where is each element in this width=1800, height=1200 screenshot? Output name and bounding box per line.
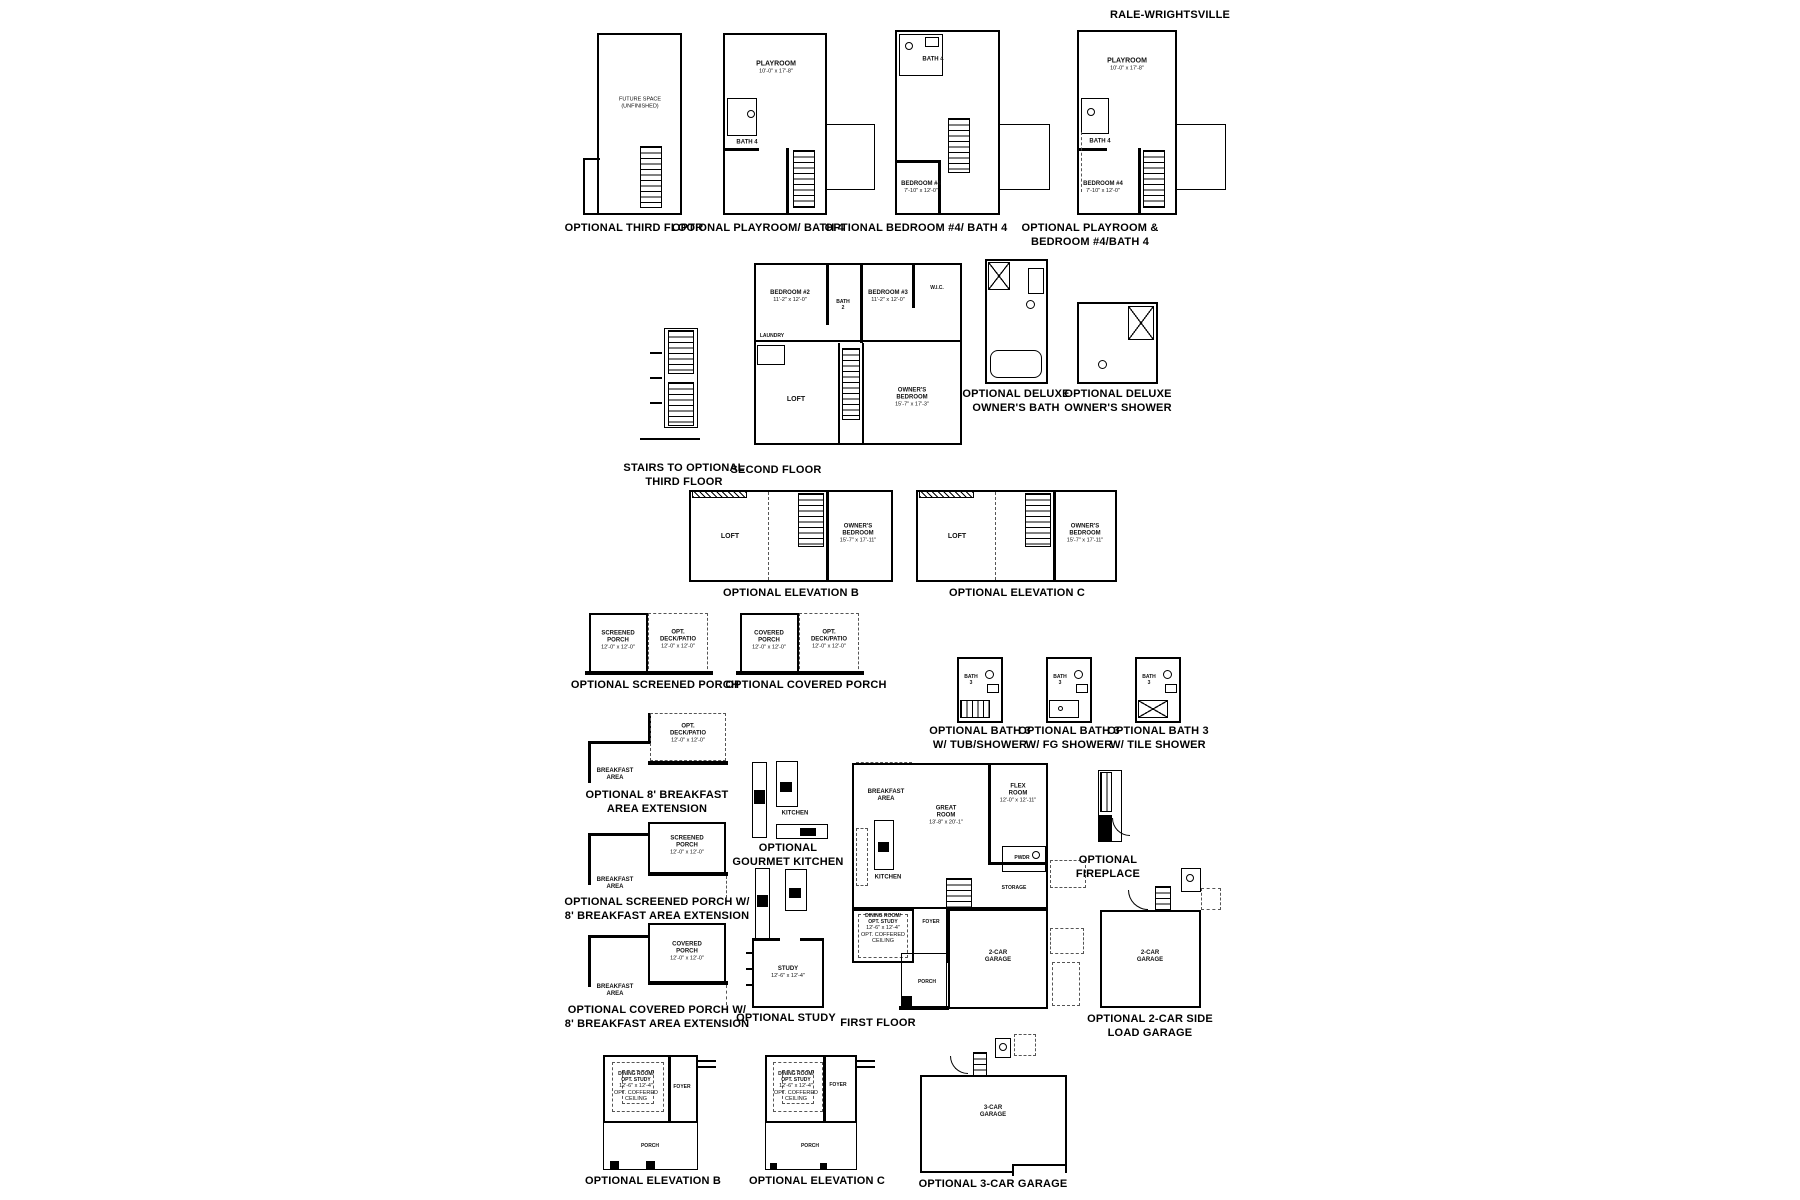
stairs-icon — [1143, 150, 1165, 208]
room-label: W.I.C. — [930, 285, 944, 291]
shower-icon — [1138, 700, 1168, 718]
room-label: OWNER'S BEDROOM15'-7" x 17'-11" — [840, 524, 876, 545]
floorplan-sheet: RALE-WRIGHTSVILLE FUTURE SPACE (UNFINISH… — [0, 0, 1800, 1200]
stairs-icon — [793, 150, 815, 208]
plan-caption: OPTIONAL DELUXE OWNER'S SHOWER — [1064, 388, 1171, 416]
wall-outline — [827, 124, 875, 190]
plan-caption: OPTIONAL ELEVATION C — [949, 587, 1085, 601]
range-icon — [754, 790, 765, 804]
room-label: PORCH — [918, 979, 936, 985]
drain-icon — [1058, 706, 1063, 711]
laundry-appliances — [757, 345, 785, 365]
room-label: GREAT ROOM13'-8" x 20'-1" — [929, 806, 963, 827]
room-label: FUTURE SPACE (UNFINISHED) — [619, 96, 661, 109]
room-label: OPT. DECK/PATIO12'-0" x 12'-0" — [660, 630, 696, 651]
plan-caption: OPTIONAL BATH 3 W/ FG SHOWER — [1018, 725, 1120, 753]
stairs-icon — [1025, 493, 1051, 547]
door-swing-icon — [950, 1056, 968, 1074]
stairs-icon — [798, 493, 824, 547]
toilet-icon — [985, 670, 994, 679]
stairs-icon — [668, 382, 694, 426]
stairs-icon — [1155, 886, 1171, 912]
plan-caption: OPTIONAL ELEVATION C — [749, 1175, 885, 1189]
room-label: 3-CAR GARAGE — [980, 1105, 1006, 1119]
stairs-icon — [668, 330, 694, 374]
room-label: BATH 3 — [1142, 674, 1156, 686]
plan-caption: OPTIONAL PLAYROOM & BEDROOM #4/BATH 4 — [1021, 222, 1158, 250]
room-label: BATH 3 — [964, 674, 978, 686]
room-label: OWNER'S BEDROOM15'-7" x 17'-3" — [895, 388, 929, 409]
room-label: LOFT — [948, 533, 966, 541]
room-label: PLAYROOM10'-0" x 17'-8" — [756, 61, 796, 76]
chimney-icon — [1100, 772, 1112, 812]
room-label: STUDY12'-6" x 12'-4" — [771, 966, 805, 980]
room-label: BATH 4 — [736, 139, 757, 146]
plan-caption: OPTIONAL BEDROOM #4/ BATH 4 — [825, 222, 1008, 236]
room-label: KITCHEN — [875, 874, 902, 881]
room-label: BEDROOM #47'-10" x 12'-0" — [1083, 181, 1123, 195]
tub-icon — [960, 700, 990, 718]
room-label: LOFT — [787, 396, 805, 404]
plan-caption: OPTIONAL BATH 3 W/ TILE SHOWER — [1107, 725, 1209, 753]
plan-caption: OPTIONAL ELEVATION B — [723, 587, 859, 601]
room-label: PLAYROOM10'-0" x 17'-8" — [1107, 58, 1147, 73]
porch-post — [820, 1163, 827, 1170]
shower-icon — [988, 262, 1010, 290]
room-label: LOFT — [721, 533, 739, 541]
sink-icon — [1165, 684, 1177, 693]
sink-icon — [1076, 684, 1088, 693]
sink-icon — [925, 37, 939, 47]
water-heater-icon — [999, 1043, 1007, 1051]
stairs-icon — [973, 1052, 987, 1076]
page-title: RALE-WRIGHTSVILLE — [1110, 9, 1230, 23]
door-swing-icon — [1128, 890, 1148, 910]
room-label: DINING ROOM/ OPT. STUDY12'-6" x 12'-4"OP… — [614, 1071, 658, 1103]
range-icon — [757, 895, 768, 907]
stairs-icon — [946, 878, 972, 910]
plan-caption: OPTIONAL 3-CAR GARAGE — [919, 1178, 1068, 1192]
room-label: SCREENED PORCH12'-0" x 12'-0" — [601, 631, 635, 652]
plan-caption: OPTIONAL SCREENED PORCH — [571, 679, 739, 693]
shower-icon — [1049, 700, 1079, 718]
room-label: FOYER — [673, 1084, 690, 1090]
porch-post — [610, 1161, 619, 1170]
room-label: PORCH — [641, 1143, 659, 1149]
plan-caption: OPTIONAL COVERED PORCH — [725, 679, 886, 693]
sink-icon — [780, 782, 792, 792]
room-label: OWNER'S BEDROOM15'-7" x 17'-11" — [1067, 524, 1103, 545]
toilet-icon — [905, 42, 913, 50]
vanity-icon — [1028, 268, 1044, 294]
room-label: BATH 2 — [836, 299, 850, 311]
toilet-icon — [747, 110, 755, 118]
room-label: BEDROOM #211'-2" x 12'-0" — [770, 290, 810, 304]
water-heater-icon — [1186, 874, 1194, 882]
room-label: BREAKFAST AREA — [597, 984, 634, 998]
toilet-icon — [1163, 670, 1172, 679]
toilet-icon — [1026, 300, 1035, 309]
room-label: BATH 4 — [922, 56, 943, 63]
room-label: BEDROOM #311'-2" x 12'-0" — [868, 290, 908, 304]
oven-icon — [800, 828, 816, 836]
plan-caption: OPTIONAL BATH 3 W/ TUB/SHOWER — [929, 725, 1031, 753]
room-label: PORCH — [801, 1143, 819, 1149]
room-label: KITCHEN — [782, 810, 809, 817]
plan-caption: FIRST FLOOR — [840, 1017, 916, 1031]
room-label: BEDROOM #47'-10" x 12'-0" — [901, 181, 941, 195]
wall-step — [1012, 1164, 1065, 1176]
wall-outline — [920, 1075, 1067, 1173]
room-label: OPT. DECK/PATIO12'-0" x 12'-0" — [670, 724, 706, 745]
room-label: LAUNDRY — [760, 333, 784, 339]
plan-caption: OPTIONAL PLAYROOM/ BATH 4 — [672, 222, 844, 236]
toilet-icon — [1032, 851, 1040, 859]
room-label: PWDR — [1014, 855, 1029, 861]
porch-post — [770, 1163, 777, 1170]
stairs-icon — [948, 118, 970, 173]
room-label: DINING ROOM/ OPT. STUDY12'-6" x 12'-4"OP… — [861, 913, 905, 945]
bath-fixtures — [1081, 98, 1109, 134]
room-label: COVERED PORCH12'-0" x 12'-0" — [752, 631, 786, 652]
firebox-icon — [1098, 815, 1112, 842]
room-label: 2-CAR GARAGE — [1137, 950, 1163, 964]
toilet-icon — [1074, 670, 1083, 679]
plan-caption: OPTIONAL DELUXE OWNER'S BATH — [962, 388, 1069, 416]
room-label: BREAKFAST AREA — [597, 877, 634, 891]
toilet-icon — [1087, 108, 1095, 116]
room-label: COVERED PORCH12'-0" x 12'-0" — [670, 942, 704, 963]
wall-outline — [583, 158, 600, 215]
room-label: FOYER — [922, 919, 939, 925]
porch-post — [646, 1161, 655, 1170]
sink-icon — [878, 842, 889, 852]
plan-caption: OPTIONAL FIREPLACE — [1076, 854, 1140, 882]
toilet-icon — [1098, 360, 1107, 369]
stairs-icon — [640, 146, 662, 208]
plan-caption: OPTIONAL COVERED PORCH W/ 8' BREAKFAST A… — [565, 1004, 749, 1032]
plan-caption: OPTIONAL SCREENED PORCH W/ 8' BREAKFAST … — [564, 896, 749, 924]
room-label: BREAKFAST AREA — [597, 768, 634, 782]
room-label: BATH 4 — [1089, 138, 1110, 145]
plan-caption: OPTIONAL 8' BREAKFAST AREA EXTENSION — [586, 789, 729, 817]
room-label: 2-CAR GARAGE — [985, 950, 1011, 964]
shower-icon — [1128, 306, 1154, 340]
wall-outline — [1000, 124, 1050, 190]
plan-caption: OPTIONAL GOURMET KITCHEN — [732, 842, 843, 870]
room-label: SCREENED PORCH12'-0" x 12'-0" — [670, 836, 704, 857]
plan-caption: SECOND FLOOR — [730, 464, 821, 478]
room-label: OPT. DECK/PATIO12'-0" x 12'-0" — [811, 630, 847, 651]
plan-caption: STAIRS TO OPTIONAL THIRD FLOOR — [623, 462, 744, 490]
stairs-icon — [842, 348, 860, 420]
room-label: STORAGE — [1002, 885, 1027, 891]
room-label: FOYER — [829, 1082, 846, 1088]
room-label: BATH 3 — [1053, 674, 1067, 686]
room-label: BREAKFAST AREA — [868, 789, 905, 803]
tub-icon — [990, 350, 1042, 378]
sink-icon — [987, 684, 999, 693]
room-label: FLEX ROOM12'-0" x 12'-11" — [1000, 784, 1036, 805]
plan-caption: OPTIONAL ELEVATION B — [585, 1175, 721, 1189]
wall-outline — [1177, 124, 1226, 190]
sink-icon — [789, 888, 801, 898]
room-label: DINING ROOM/ OPT. STUDY12'-6" x 12'-4"OP… — [774, 1071, 818, 1103]
plan-caption: OPTIONAL STUDY — [736, 1012, 836, 1026]
counter-icon — [856, 828, 868, 886]
plan-caption: OPTIONAL 2-CAR SIDE LOAD GARAGE — [1087, 1013, 1213, 1041]
